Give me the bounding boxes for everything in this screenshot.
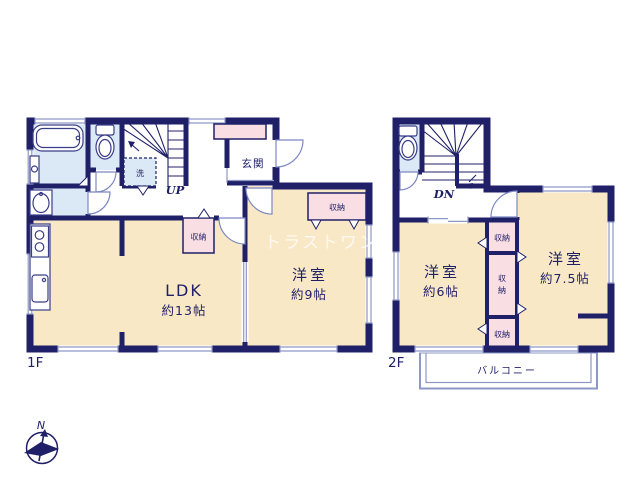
storage-bottom-label: 収納 [494,329,510,339]
storage-mid-label-1: 収 [498,273,506,283]
entrance-step-line [227,168,274,183]
floorplan-page: LDK 約13帖 洋室 約9帖 玄関 収納 収納 洗 UP 1F 洋室 約6帖 … [0,0,640,480]
storage-top-label: 収納 [494,233,510,243]
sliding-door-hall-bedroom6 [428,217,468,224]
bedroom9-size-label: 約9帖 [291,287,327,302]
window-bedroom6-bottom [415,346,483,353]
window-bedroom9-bottom [280,346,337,353]
window-ldk-bottom-1 [58,346,118,353]
bedroom75-size-label: 約7.5帖 [540,271,590,286]
bedroom6-label: 洋室 [424,263,460,281]
toilet-1f [96,125,114,159]
stairs-dn-label: DN [433,187,455,201]
toilet1f-door-arc [96,172,116,192]
laundry-door-triangle [137,186,149,195]
room-bedroom75 [517,189,611,349]
window-bedroom6-left [393,252,400,300]
stairs-2f [422,122,487,189]
balcony-label: バルコニー [477,365,537,377]
bath-vanity [30,156,39,183]
bedroom75-label: 洋室 [548,250,584,268]
window-bedroom9-right-2 [366,277,373,323]
ldk-size-label: 約13帖 [162,303,207,318]
window-bedroom75-top [543,186,592,193]
sliding-partition-ldk-bedroom9 [242,262,249,342]
floor1-label: 1F [27,355,43,371]
washbasin [30,190,52,215]
watermark: トラストワン [264,233,378,253]
ldk-label: LDK [165,281,203,300]
laundry-label: 洗 [136,168,144,178]
bedroom75-door-arc [491,191,517,217]
washroom-door-arc [88,192,110,214]
toilet2f-door-arc [400,172,418,190]
hall-storage-triangle [198,209,210,218]
hall-storage-label: 収納 [191,232,207,242]
window-bedroom75-right [608,222,615,283]
bathtub [33,125,83,151]
window-ldk-bottom-2 [158,346,212,353]
kitchen-counter [30,224,50,310]
front-door-arc [276,140,303,167]
shoe-cabinet [214,124,266,139]
toilet-2f [399,126,417,160]
entrance-label: 玄関 [242,157,265,170]
bedroom9-label: 洋室 [292,266,328,284]
storage-mid-label-2: 納 [498,285,506,295]
window-bedroom75-bottom [530,346,578,353]
stairs-up-label: UP [166,183,185,197]
compass: N [24,419,59,464]
bedroom9-storage-label: 収納 [329,202,345,212]
bedroom6-size-label: 約6帖 [423,284,459,299]
window-bath-top [35,118,85,125]
storage-mid-fill [487,253,517,317]
floor2-label: 2F [388,355,404,371]
floorplan-svg: LDK 約13帖 洋室 約9帖 玄関 収納 収納 洗 UP 1F 洋室 約6帖 … [0,0,640,480]
compass-north-label: N [37,419,45,432]
